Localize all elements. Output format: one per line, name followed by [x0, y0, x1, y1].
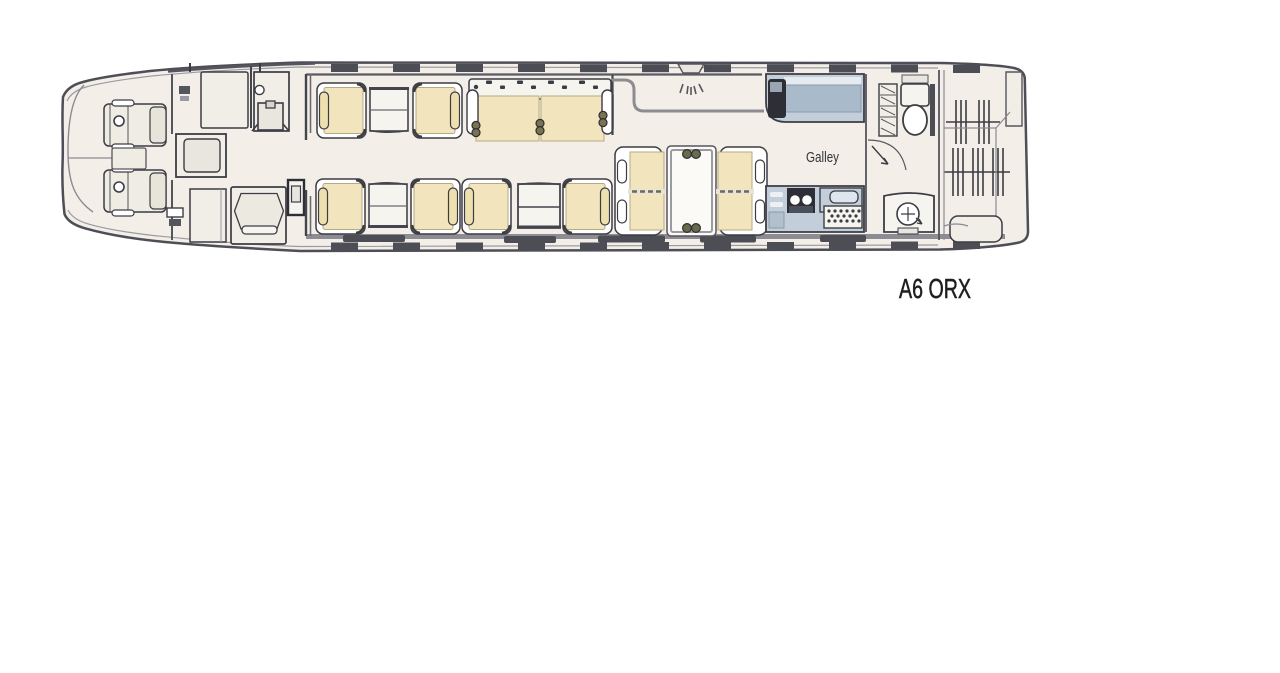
svg-text:A6 ORX: A6 ORX: [899, 273, 971, 304]
svg-text:Galley: Galley: [806, 150, 840, 166]
